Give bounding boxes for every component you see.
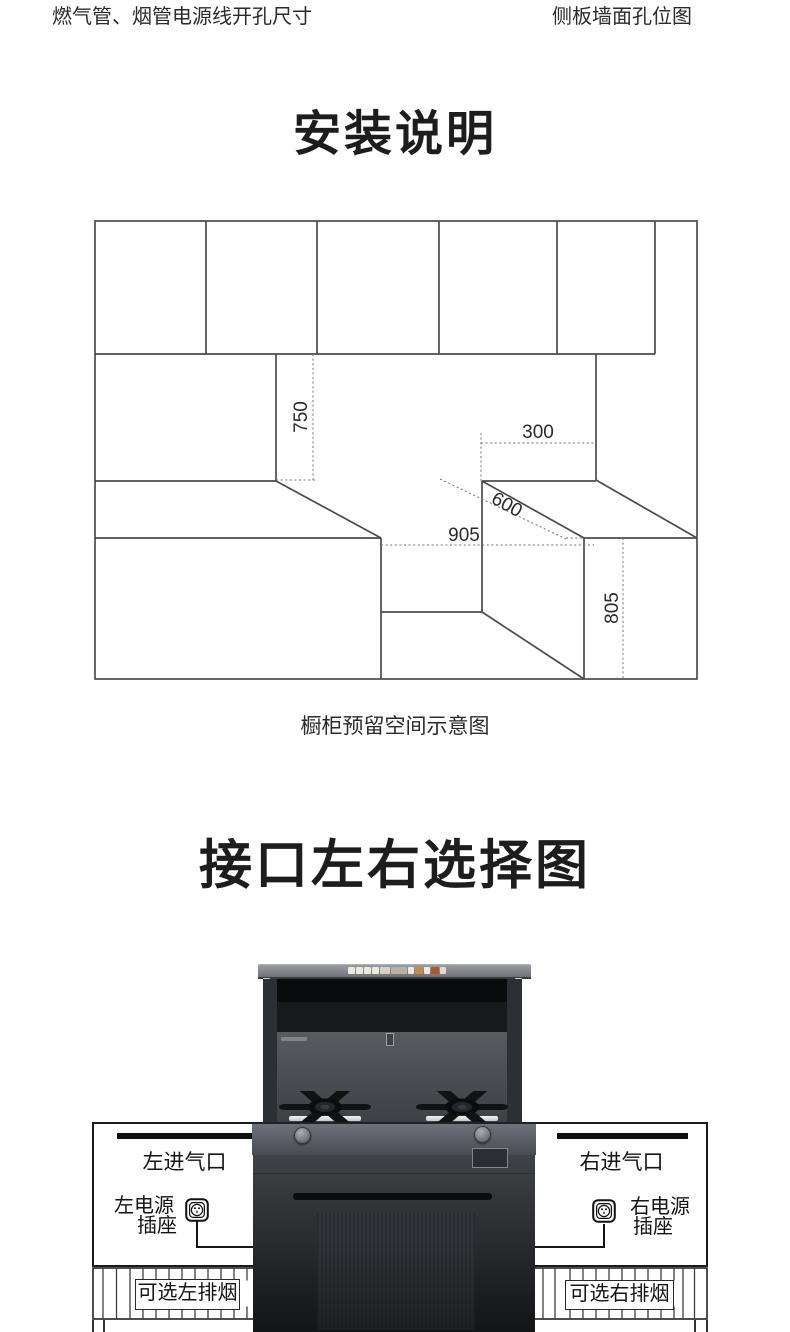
hood-strip-segment: [415, 967, 423, 974]
page: 燃气管、烟管电源线开孔尺寸 侧板墙面孔位图 安装说明: [0, 0, 790, 1332]
right-socket-connector-line: [534, 1224, 605, 1248]
power-socket-icon: [592, 1199, 616, 1224]
oven-door-shade: [253, 1240, 535, 1332]
oven-seam: [253, 1173, 535, 1174]
right-inlet-label: 右进气口: [555, 1146, 688, 1176]
diagram-caption: 橱柜预留空间示意图: [0, 710, 790, 740]
left-inlet-label: 左进气口: [117, 1146, 252, 1176]
cabinet-reserved-space-diagram: 750 300 600 905 805: [92, 218, 702, 683]
hood-strip-segment: [356, 967, 363, 974]
back-panel-badge: [386, 1033, 394, 1046]
panel-border-remnant: [694, 1320, 696, 1332]
hood-strip-segment: [431, 967, 439, 974]
panel-border-remnant: [706, 1320, 708, 1332]
left-socket-connector-line: [196, 1221, 253, 1248]
hood-strip-segment: [408, 967, 414, 974]
hood-strip-segment: [391, 967, 407, 974]
prev-section-caption-left: 燃气管、烟管电源线开孔尺寸: [52, 0, 312, 29]
left-control-knob: [294, 1127, 311, 1144]
panel-border-remnant: [92, 1320, 94, 1332]
hood-inner-panel: [277, 1002, 507, 1032]
brand-logo: [281, 1037, 307, 1041]
hood-cavity: [277, 979, 507, 1002]
burner-left-icon: [275, 1091, 375, 1125]
left-gas-bar: [117, 1133, 252, 1139]
hood-strip-segment: [424, 967, 430, 974]
hood-strip-segment: [364, 967, 371, 974]
oven-handle-groove: [293, 1193, 492, 1200]
hood-strip-segment: [380, 967, 390, 974]
hood-control-strip: [348, 966, 446, 975]
hood-strip-segment: [348, 967, 355, 974]
hood-strip-segment: [440, 967, 446, 974]
prev-section-caption-right: 侧板墙面孔位图: [552, 0, 692, 29]
interface-title: 接口左右选择图: [0, 823, 790, 899]
dim-750: 750: [291, 401, 312, 433]
right-exhaust-label: 可选右排烟: [565, 1280, 674, 1310]
right-gas-bar: [557, 1133, 688, 1139]
right-control-knob: [474, 1126, 491, 1143]
dim-905: 905: [448, 525, 480, 546]
dim-805: 805: [602, 592, 623, 624]
panel-border-remnant: [103, 1320, 105, 1332]
left-exhaust-label: 可选左排烟: [135, 1279, 240, 1310]
burner-right-icon: [412, 1091, 512, 1125]
hood-strip-segment: [372, 967, 379, 974]
oven-display: [472, 1148, 508, 1168]
right-power-label: 右电源 插座: [620, 1197, 700, 1237]
dim-300: 300: [522, 422, 554, 443]
left-power-label: 左电源 插座: [104, 1196, 184, 1236]
install-title: 安装说明: [0, 94, 790, 164]
power-socket-icon: [185, 1198, 209, 1223]
